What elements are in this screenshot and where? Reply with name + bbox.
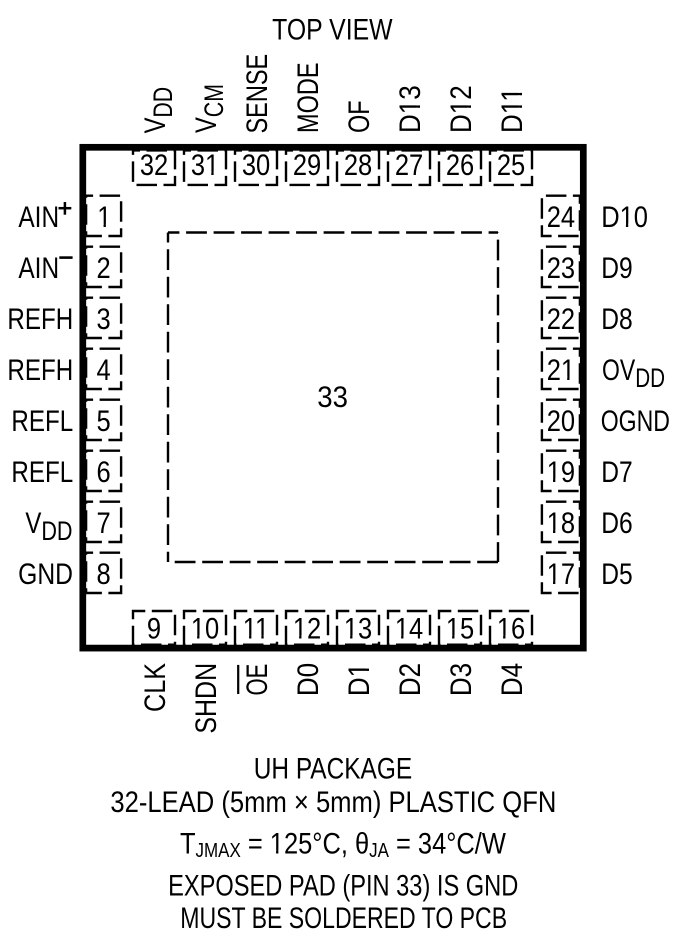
svg-text:30: 30	[242, 148, 270, 181]
svg-text:REFL: REFL	[11, 454, 73, 488]
svg-text:D6: D6	[601, 506, 632, 540]
svg-text:8: 8	[97, 557, 111, 590]
svg-text:D7: D7	[601, 455, 632, 489]
svg-text:EXPOSED PAD (PIN 33) IS GND: EXPOSED PAD (PIN 33) IS GND	[168, 869, 518, 902]
svg-text:AIN: AIN	[18, 200, 59, 234]
svg-text:MUST BE SOLDERED TO PCB: MUST BE SOLDERED TO PCB	[180, 901, 507, 935]
svg-text:3: 3	[97, 302, 111, 335]
svg-text:33: 33	[317, 381, 348, 414]
svg-text:4: 4	[97, 353, 111, 386]
svg-text:GND: GND	[18, 557, 73, 591]
svg-text:23: 23	[547, 251, 575, 284]
svg-text:D5: D5	[601, 557, 632, 591]
svg-text:D2: D2	[393, 663, 426, 696]
svg-text:28: 28	[344, 148, 372, 181]
svg-text:32-LEAD (5mm × 5mm) PLASTIC QF: 32-LEAD (5mm × 5mm) PLASTIC QFN	[110, 785, 556, 818]
svg-text:SENSE: SENSE	[240, 54, 273, 134]
svg-text:TOP VIEW: TOP VIEW	[272, 12, 392, 46]
svg-text:D9: D9	[601, 251, 632, 285]
svg-text:SHDN: SHDN	[189, 663, 223, 734]
svg-text:D3: D3	[444, 663, 477, 696]
svg-text:32: 32	[140, 148, 168, 181]
svg-text:29: 29	[293, 148, 321, 181]
svg-text:20: 20	[547, 404, 575, 437]
svg-text:AIN: AIN	[18, 251, 59, 285]
svg-text:9: 9	[147, 612, 161, 645]
svg-text:6: 6	[97, 455, 111, 488]
svg-text:5: 5	[97, 404, 111, 437]
svg-text:OF: OF	[342, 100, 375, 133]
svg-text:OE: OE	[240, 664, 274, 696]
svg-text:MODE: MODE	[291, 62, 324, 133]
svg-text:2: 2	[97, 251, 111, 284]
svg-text:22: 22	[547, 302, 575, 335]
svg-text:7: 7	[97, 506, 111, 539]
svg-text:REFH: REFH	[7, 301, 73, 335]
svg-text:27: 27	[395, 148, 423, 181]
svg-text:REFH: REFH	[7, 352, 73, 386]
svg-text:OGND: OGND	[601, 404, 670, 438]
svg-text:26: 26	[446, 148, 474, 181]
svg-text:UH PACKAGE: UH PACKAGE	[254, 751, 412, 785]
svg-text:24: 24	[547, 200, 575, 233]
svg-text:REFL: REFL	[11, 403, 73, 437]
svg-text:25: 25	[497, 148, 525, 181]
svg-text:CLK: CLK	[138, 662, 172, 712]
svg-text:D4: D4	[495, 663, 528, 696]
svg-text:D0: D0	[291, 663, 324, 696]
svg-text:D8: D8	[601, 302, 632, 336]
